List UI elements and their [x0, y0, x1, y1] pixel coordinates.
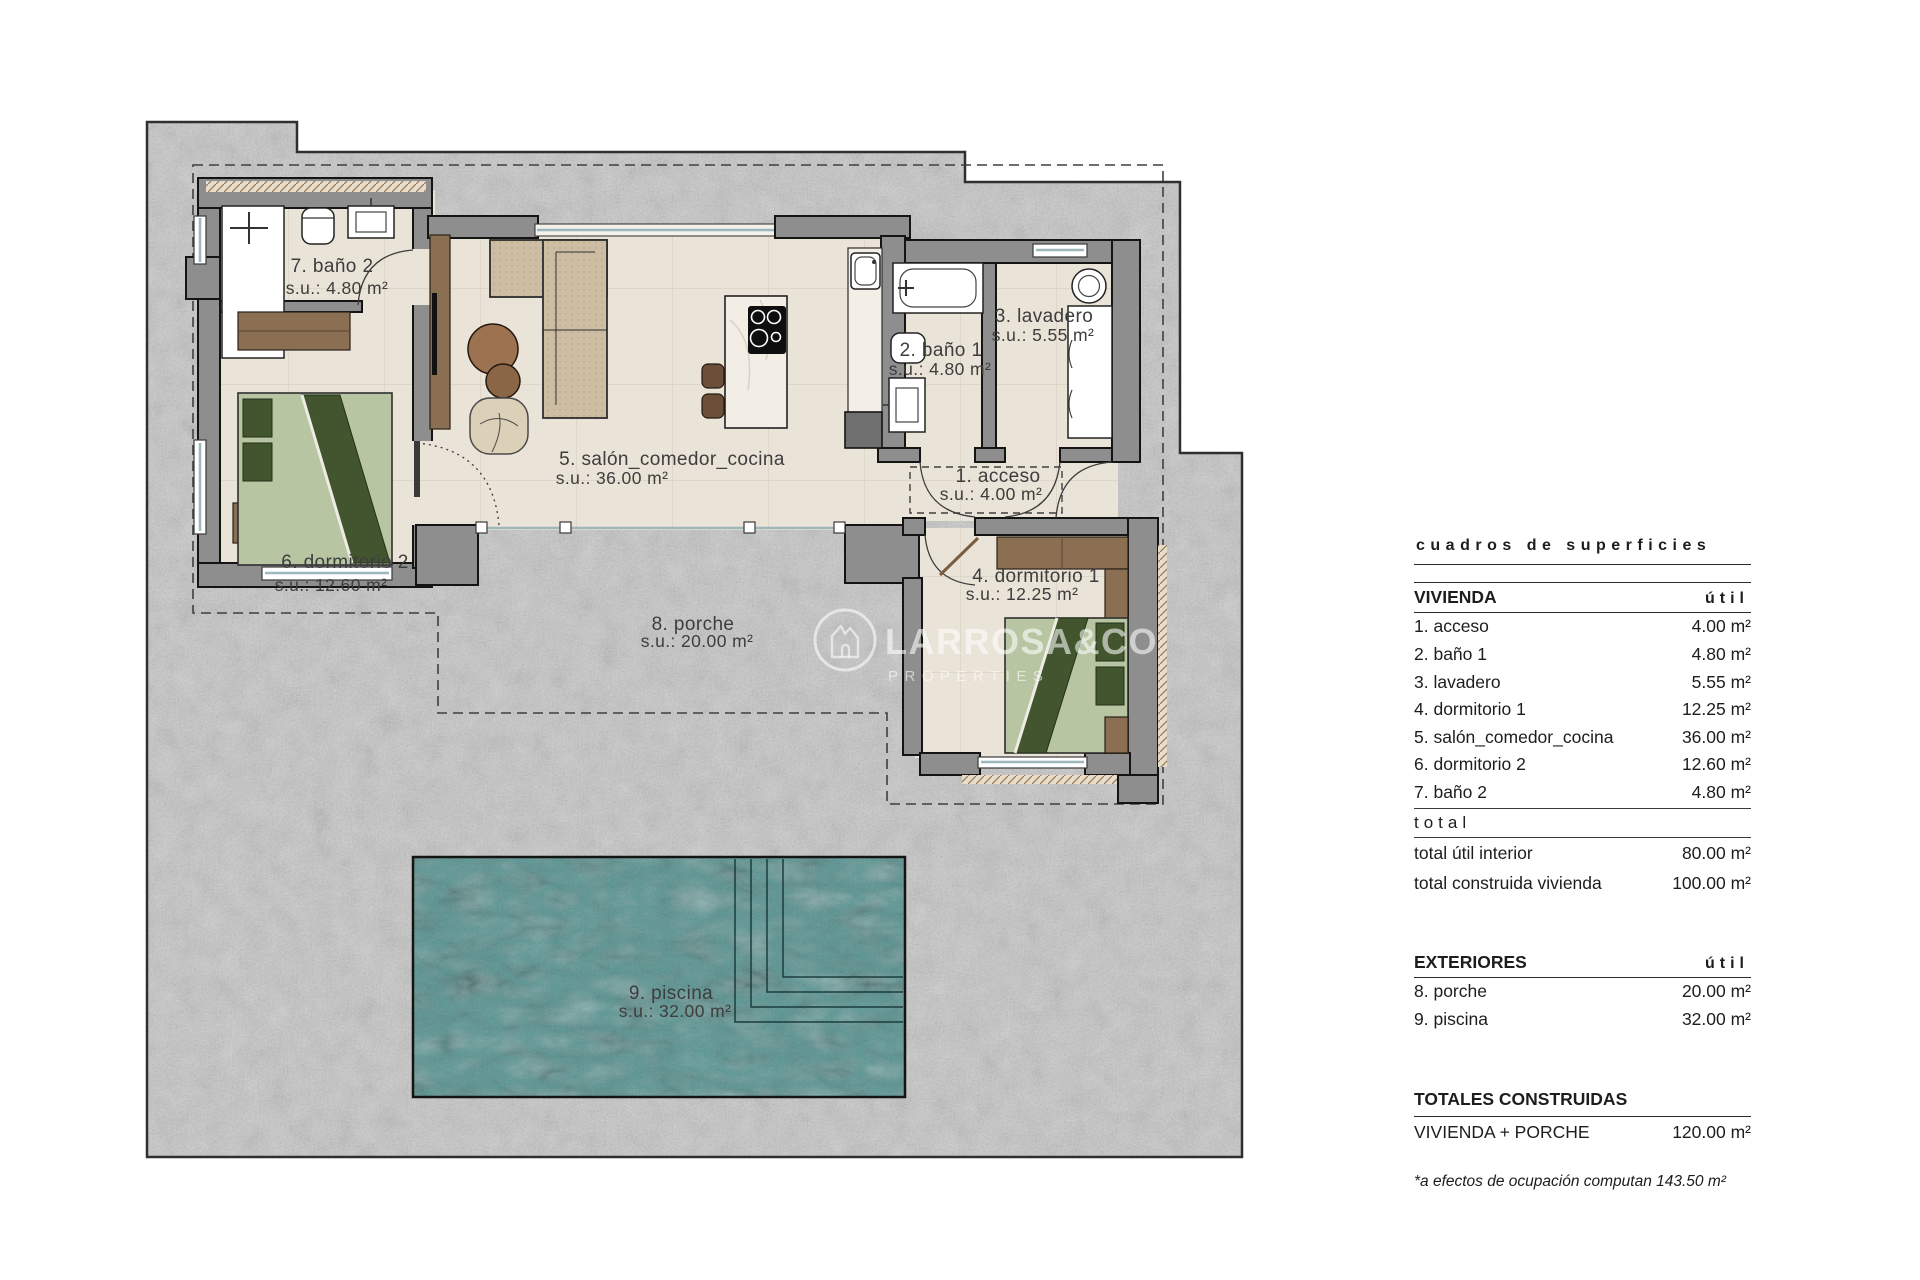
table-row: 2. baño 14.80 m²: [1414, 641, 1751, 669]
kitchen-counter: [848, 248, 882, 432]
label-bano1-su: s.u.: 4.80 m²: [889, 359, 991, 379]
nightstand-dorm1: [1105, 717, 1128, 753]
label-salon-su: s.u.: 36.00 m²: [556, 468, 669, 488]
table-row: 5. salón_comedor_cocina36.00 m²: [1414, 723, 1751, 751]
vivienda-section: VIVIENDA útil 1. acceso4.00 m² 2. baño 1…: [1414, 582, 1751, 898]
label-piscina-su: s.u.: 32.00 m²: [619, 1001, 732, 1021]
surface-table: cuadros de superficies VIVIENDA útil 1. …: [1414, 537, 1751, 1191]
label-porche-su: s.u.: 20.00 m²: [641, 631, 754, 651]
stool-1: [702, 364, 724, 388]
exteriores-section: EXTERIORES útil 8. porche20.00 m² 9. pis…: [1414, 948, 1751, 1033]
sink-bano1: [883, 378, 925, 432]
table-row: 8. porche20.00 m²: [1414, 978, 1751, 1006]
insulation-hatch-bottom: [962, 775, 1120, 784]
occupancy-footnote: *a efectos de ocupación computan 143.50 …: [1414, 1173, 1751, 1191]
label-dorm2: 6. dormitorio 2: [281, 552, 408, 573]
toilet-bano2: [302, 208, 334, 244]
pouf: [470, 398, 528, 454]
watermark-brand: LARROSA&CO: [885, 621, 1158, 662]
exteriores-unit-header: útil: [1705, 955, 1749, 973]
label-salon: 5. salón_comedor_cocina: [559, 449, 785, 470]
insulation-hatch-right: [1158, 545, 1167, 767]
watermark-tagline: PROPERTIES: [888, 668, 1049, 685]
label-bano1: 2. baño 1: [900, 340, 983, 361]
label-acceso-su: s.u.: 4.00 m²: [940, 484, 1042, 504]
totales-header: TOTALES CONSTRUIDAS: [1414, 1089, 1751, 1117]
table-row: 1. acceso4.00 m²: [1414, 613, 1751, 641]
insulation-hatch-top: [206, 181, 426, 192]
total-divider: total: [1414, 808, 1751, 838]
vivienda-header: VIVIENDA: [1414, 587, 1497, 608]
stool-2: [702, 394, 724, 418]
fridge: [845, 412, 882, 448]
label-bano2: 7. baño 2: [291, 256, 374, 277]
table-row: 4. dormitorio 112.25 m²: [1414, 696, 1751, 724]
vivienda-unit-header: útil: [1705, 590, 1749, 608]
label-lavadero-su: s.u.: 5.55 m²: [992, 325, 1094, 345]
table-row: 6. dormitorio 212.60 m²: [1414, 751, 1751, 779]
table-row-total: VIVIENDA + PORCHE120.00 m²: [1414, 1117, 1751, 1147]
label-dorm2-su: s.u.: 12.60 m²: [275, 575, 388, 595]
cooktop: [748, 306, 786, 354]
table-row: 7. baño 24.80 m²: [1414, 778, 1751, 806]
door-leaf-dorm2: [414, 441, 420, 497]
bed-dorm2: [238, 393, 392, 565]
label-bano2-su: s.u.: 4.80 m²: [286, 278, 388, 298]
table-title: cuadros de superficies: [1414, 537, 1751, 565]
coffee-table-small: [486, 364, 520, 398]
table-row-total: total útil interior80.00 m²: [1414, 838, 1751, 868]
table-row-total: total construida vivienda100.00 m²: [1414, 868, 1751, 898]
table-row: 3. lavadero5.55 m²: [1414, 668, 1751, 696]
table-row: 9. piscina32.00 m²: [1414, 1006, 1751, 1034]
label-dorm1-su: s.u.: 12.25 m²: [966, 584, 1079, 604]
label-lavadero: 3. lavadero: [995, 306, 1093, 327]
floor-plan-document: LARROSA&CO PROPERTIES 7. baño 2 s.u.: 4.…: [0, 0, 1920, 1280]
tv-unit: [430, 235, 450, 429]
totales-section: TOTALES CONSTRUIDAS VIVIENDA + PORCHE120…: [1414, 1089, 1751, 1191]
bathtub-bano1: [893, 263, 983, 313]
exteriores-header: EXTERIORES: [1414, 952, 1527, 973]
pool: [405, 850, 915, 1106]
washer: [1072, 269, 1106, 303]
